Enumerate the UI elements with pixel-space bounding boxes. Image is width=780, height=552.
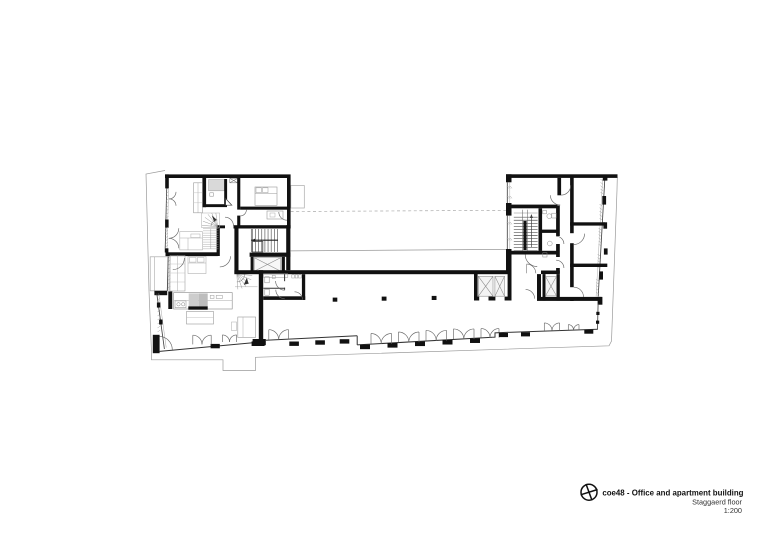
svg-text:coe48 - Office and apartment b: coe48 - Office and apartment building	[602, 489, 743, 498]
svg-text:1:200: 1:200	[724, 506, 742, 515]
